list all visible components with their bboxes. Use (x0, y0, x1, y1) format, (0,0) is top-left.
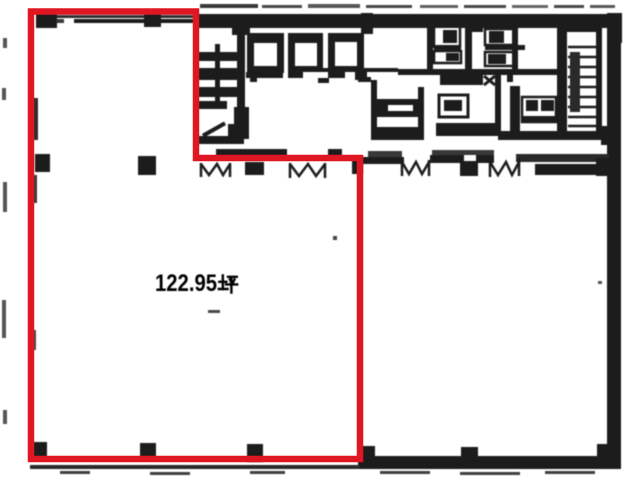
svg-text:122.95: 122.95 (155, 270, 217, 297)
